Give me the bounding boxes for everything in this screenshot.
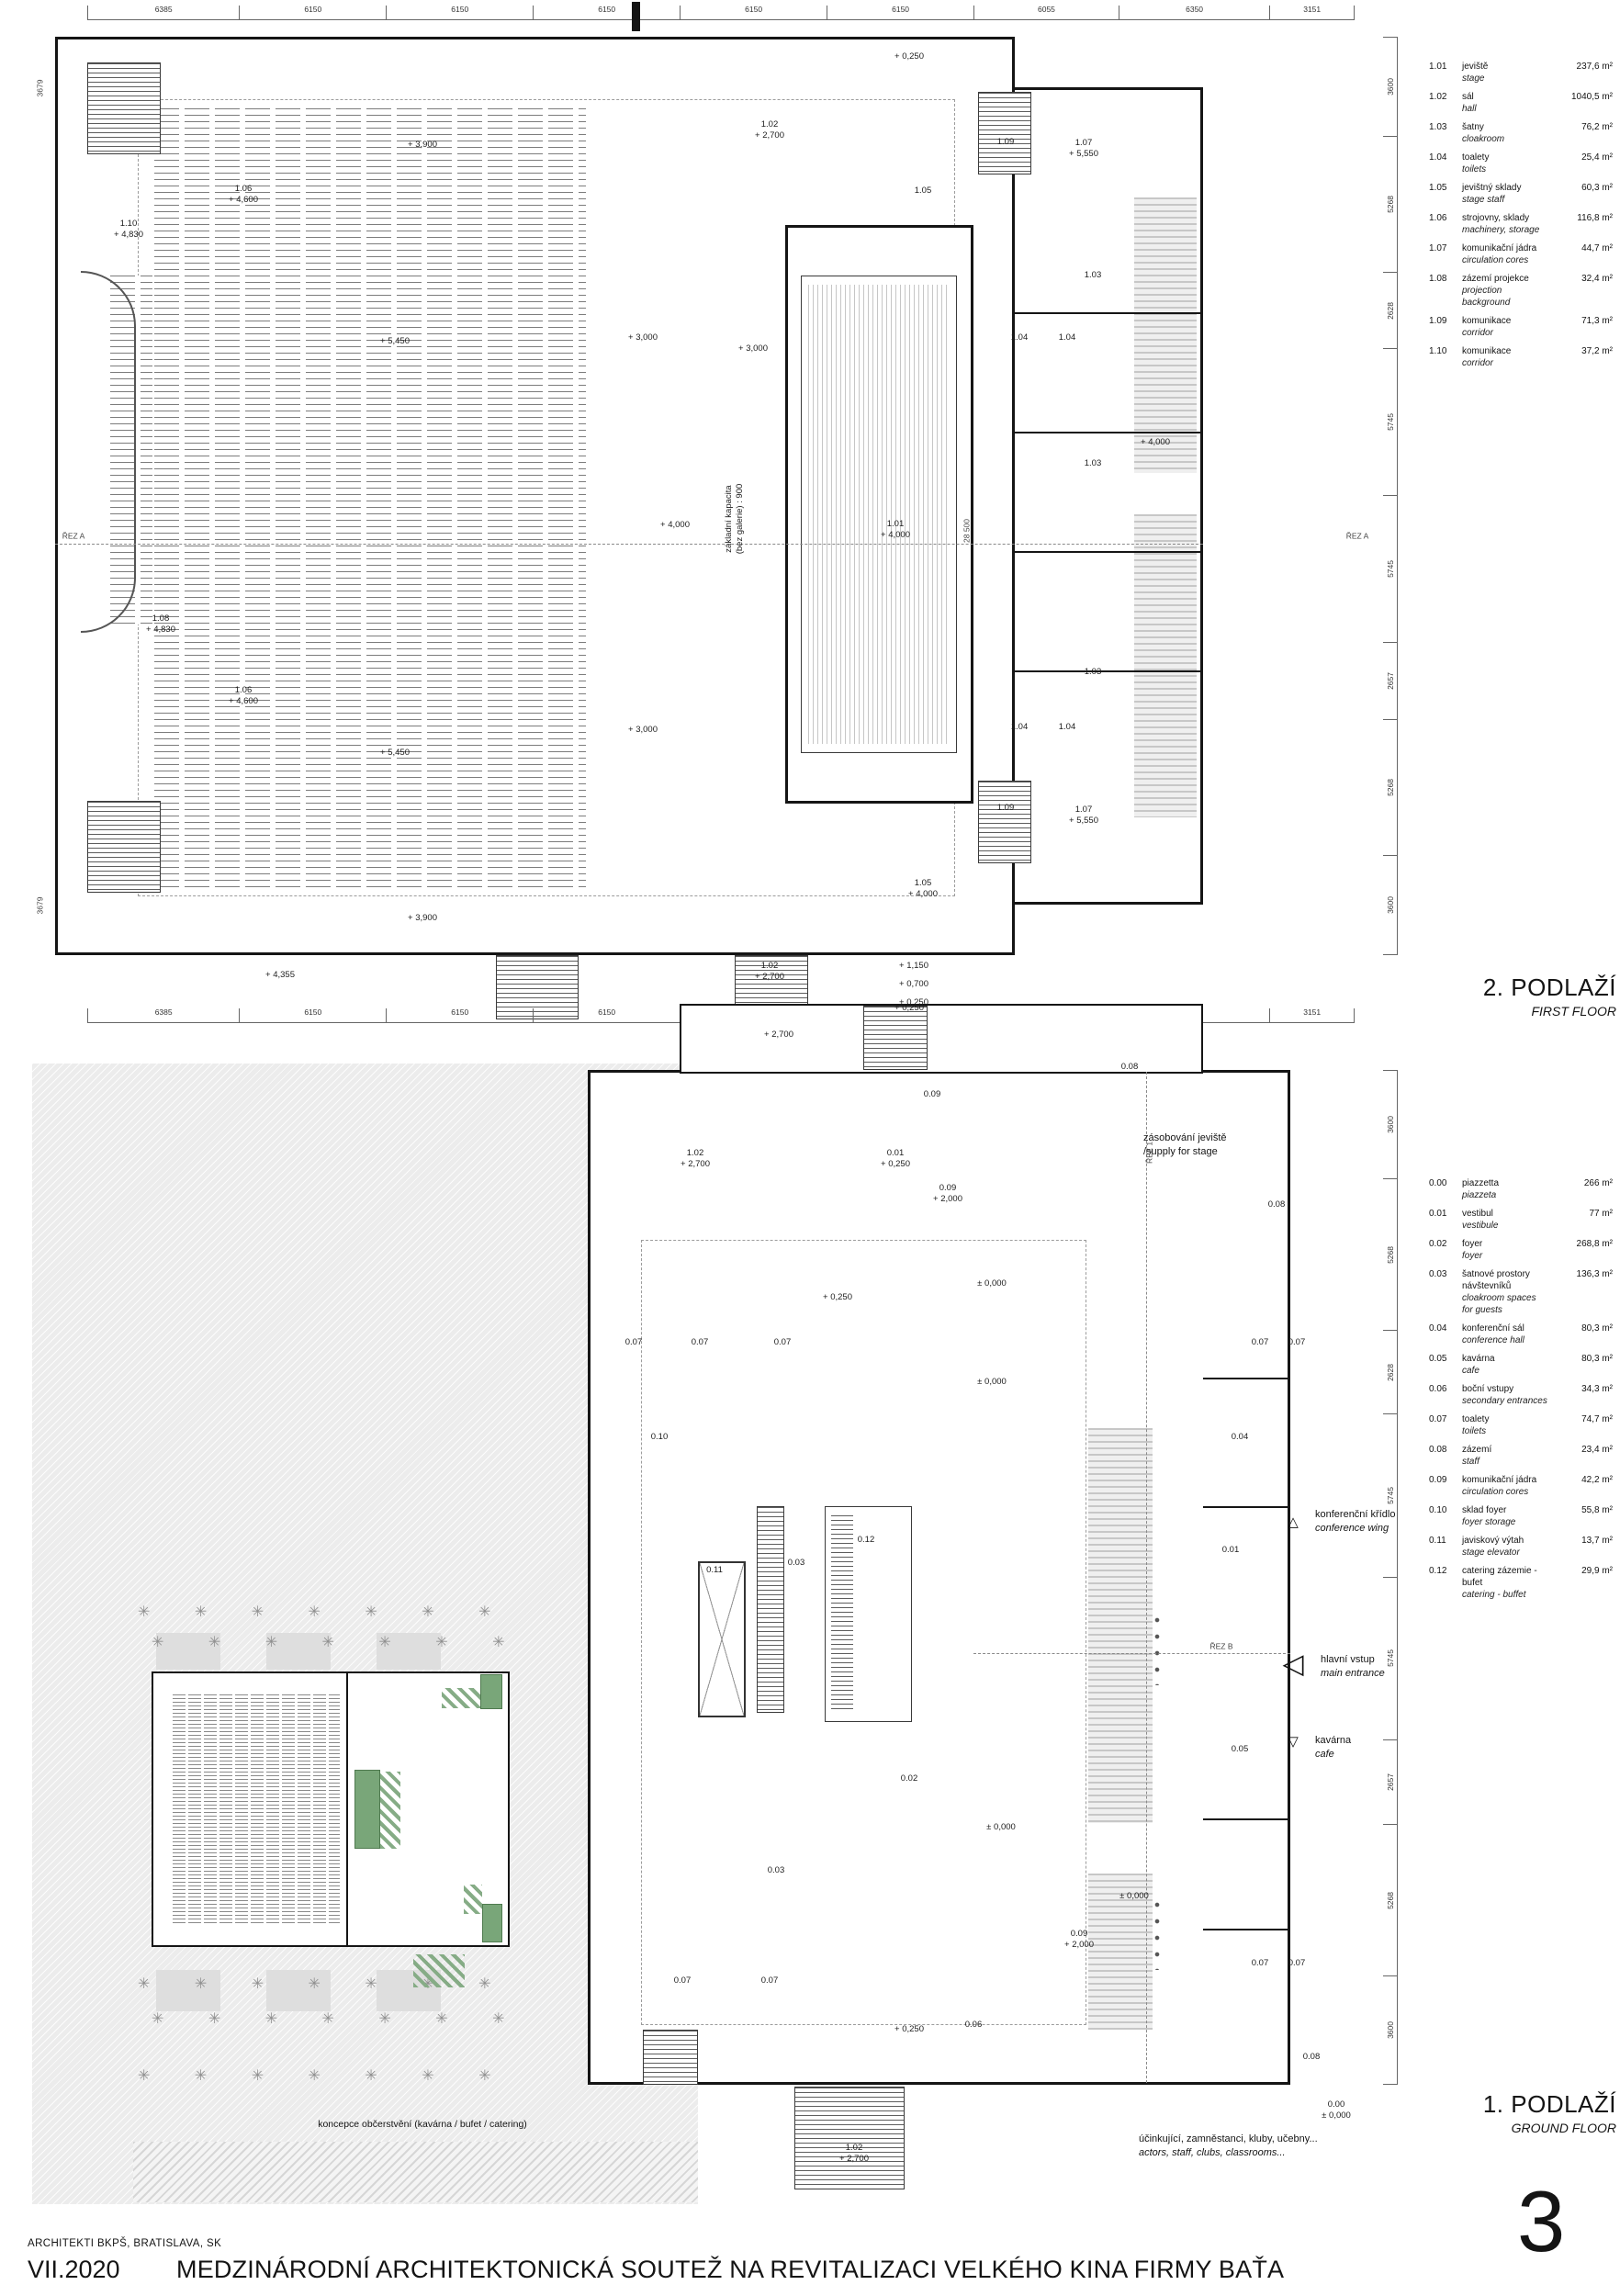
dimension-value: 5268 — [1386, 779, 1395, 796]
plan-tag: 0.00 ± 0,000 — [1322, 2099, 1351, 2122]
legend-room-id: 0.09 — [1429, 1474, 1457, 1498]
plan-tag: + 0,700 — [899, 979, 928, 990]
legend-name-en: piazzeta — [1462, 1189, 1548, 1201]
legend-name-cz: konferenční sál — [1462, 1322, 1548, 1334]
stair — [978, 92, 1031, 174]
dimension-value: 2657 — [1386, 1773, 1395, 1791]
legend-room-names: toaletytoilets — [1462, 1413, 1548, 1437]
dimension-value: 6385 — [155, 1007, 173, 1022]
floor-title-cz: 1. PODLAŽÍ — [1446, 2090, 1616, 2119]
balcony-arc — [81, 271, 136, 633]
tree-icon-row: ✳ ✳ ✳ ✳ ✳ ✳ ✳ — [152, 2009, 525, 2028]
dimension-segment: 6385 — [87, 6, 239, 19]
legend-room-names: zázemí projekceprojection background — [1462, 273, 1548, 309]
legend-name-en: corridor — [1462, 327, 1548, 339]
triangle-left-icon: ◁ — [1282, 1649, 1303, 1681]
dimension-value: 3600 — [1386, 1116, 1395, 1133]
legend-room-names: šatnycloakroom — [1462, 121, 1548, 145]
main-entrance-annotation-en: main entrance — [1321, 1667, 1385, 1681]
ground-floor-title: 1. PODLAŽÍ GROUND FLOOR — [1446, 2090, 1616, 2135]
legend-name-cz: šatny — [1462, 121, 1548, 133]
supply-annotation-en: /supply for stage — [1143, 1145, 1227, 1159]
legend-name-en: stage elevator — [1462, 1547, 1548, 1559]
dimension-segment: 6150 — [533, 1008, 680, 1022]
legend-name-en: circulation cores — [1462, 254, 1548, 266]
triangle-up-icon: △ — [1288, 1514, 1299, 1530]
legend-row: 0.12catering zázemie - bufetcatering - b… — [1429, 1565, 1613, 1601]
cafe-annotation: kavárna cafe — [1315, 1734, 1351, 1761]
legend-name-en: stage — [1462, 73, 1548, 84]
footer-title: MEDZINÁRODNÍ ARCHITEKTONICKÁ SOUTEŽ NA R… — [176, 2256, 1284, 2284]
dimension-value: 6150 — [304, 5, 321, 19]
legend-room-area: 34,3 m² — [1554, 1383, 1613, 1407]
cafe-annotation-en: cafe — [1315, 1748, 1351, 1761]
dimension-value: 2628 — [1386, 302, 1395, 320]
dimension-segment: 5745 — [1383, 1577, 1397, 1739]
legend-room-id: 0.02 — [1429, 1238, 1457, 1262]
legend-room-id: 1.01 — [1429, 61, 1457, 84]
legend-name-cz: komunikace — [1462, 315, 1548, 327]
legend-room-area: 60,3 m² — [1554, 182, 1613, 206]
supply-annotation: zásobování jeviště /supply for stage — [1143, 1131, 1227, 1159]
legend-row: 1.01jevištěstage237,6 m² — [1429, 61, 1613, 84]
legend-room-names: boční vstupysecondary entrances — [1462, 1383, 1548, 1407]
legend-room-area: 42,2 m² — [1554, 1474, 1613, 1498]
legend-room-names: konferenční sálconference hall — [1462, 1322, 1548, 1346]
catering-hatch-zone — [413, 1954, 465, 1987]
wing-partition — [1203, 1929, 1290, 1930]
supply-annotation-cz: zásobování jeviště — [1143, 1131, 1227, 1145]
legend-name-en: cafe — [1462, 1365, 1548, 1377]
legend-room-id: 1.02 — [1429, 91, 1457, 115]
dimension-segment: 2628 — [1383, 1330, 1397, 1414]
legend-name-cz: komunikační jádra — [1462, 1474, 1548, 1486]
catering-hatch-zone — [464, 1885, 482, 1914]
dimension-value: 3151 — [1303, 1007, 1321, 1022]
conference-annotation: konferenční křídlo conference wing — [1315, 1508, 1395, 1536]
wing-partition — [1015, 670, 1203, 672]
page-number: 3 — [1517, 2178, 1565, 2265]
staff-annotation-cz: účinkující, zamněstanci, kluby, učebny..… — [1139, 2133, 1318, 2146]
catering-zone — [482, 1904, 502, 1942]
legend-name-cz: komunikace — [1462, 345, 1548, 357]
dimension-value: 6150 — [451, 1007, 468, 1022]
legend-name-cz: jevištný sklady — [1462, 182, 1548, 194]
catering-hatch-zone — [380, 1772, 400, 1849]
legend-name-cz: piazzetta — [1462, 1177, 1548, 1189]
dimension-value: 5745 — [1386, 1649, 1395, 1667]
inset-caption: koncepce občerstvění (kavárna / bufet / … — [271, 2118, 574, 2131]
legend-room-id: 0.08 — [1429, 1444, 1457, 1468]
dimension-segment: 3600 — [1383, 37, 1397, 136]
dimension-segment: 6055 — [973, 6, 1119, 19]
auditorium-seating — [154, 108, 586, 891]
dimension-segment: 2657 — [1383, 642, 1397, 720]
catering-zone — [480, 1674, 502, 1709]
legend-name-en: toilets — [1462, 163, 1548, 175]
first-floor-legend: 1.01jevištěstage237,6 m²1.02sálhall1040,… — [1429, 61, 1613, 376]
legend-room-id: 1.05 — [1429, 182, 1457, 206]
legend-name-en: secondary entrances — [1462, 1395, 1548, 1407]
legend-row: 1.02sálhall1040,5 m² — [1429, 91, 1613, 115]
plan-tag: 3679 — [36, 897, 46, 915]
legend-name-en: circulation cores — [1462, 1486, 1548, 1498]
legend-name-cz: catering zázemie - bufet — [1462, 1565, 1548, 1589]
stair — [87, 801, 161, 893]
legend-room-names: komunikační jádracirculation cores — [1462, 1474, 1548, 1498]
legend-room-id: 1.04 — [1429, 152, 1457, 175]
plan-tag: 3679 — [36, 80, 46, 97]
wing-partition — [1015, 312, 1203, 314]
floor-title-cz: 2. PODLAŽÍ — [1446, 974, 1616, 1002]
legend-room-names: komunikační jádracirculation cores — [1462, 242, 1548, 266]
legend-name-en: projection background — [1462, 285, 1548, 309]
legend-name-cz: strojovny, sklady — [1462, 212, 1548, 224]
legend-room-names: piazzettapiazzeta — [1462, 1177, 1548, 1201]
legend-row: 0.05kavárnacafe80,3 m² — [1429, 1353, 1613, 1377]
legend-name-cz: komunikační jádra — [1462, 242, 1548, 254]
legend-room-area: 71,3 m² — [1554, 315, 1613, 339]
dimension-value: 2628 — [1386, 1364, 1395, 1381]
stagehouse-block — [680, 1004, 1203, 1074]
legend-room-area: 268,8 m² — [1554, 1238, 1613, 1262]
legend-row: 0.03šatnové prostory návštevníkůcloakroo… — [1429, 1268, 1613, 1316]
legend-room-id: 0.07 — [1429, 1413, 1457, 1437]
plan-tag: 0.07 — [1288, 1958, 1306, 1969]
legend-row: 0.06boční vstupysecondary entrances34,3 … — [1429, 1383, 1613, 1407]
legend-room-area: 29,9 m² — [1554, 1565, 1613, 1601]
dimension-value: 5268 — [1386, 1246, 1395, 1264]
legend-row: 1.05jevištný skladystage staff60,3 m² — [1429, 182, 1613, 206]
section-line-b — [973, 1653, 1290, 1654]
legend-name-en: machinery, storage — [1462, 224, 1548, 236]
dimension-segment: 5268 — [1383, 1824, 1397, 1975]
legend-row: 1.09komunikacecorridor71,3 m² — [1429, 315, 1613, 339]
legend-room-names: komunikacecorridor — [1462, 345, 1548, 369]
section-line-a — [55, 544, 1203, 545]
wing-partition — [1015, 551, 1203, 553]
dimension-segment: 3151 — [1269, 1008, 1355, 1022]
tree-icon-row: ✳ ✳ ✳ ✳ ✳ ✳ ✳ — [138, 2066, 512, 2085]
legend-room-area: 13,7 m² — [1554, 1535, 1613, 1559]
tree-icon-row: ✳ ✳ ✳ ✳ ✳ ✳ ✳ — [138, 1603, 512, 1621]
legend-name-en: cloakroom spaces for guests — [1462, 1292, 1548, 1316]
legend-room-area: 44,7 m² — [1554, 242, 1613, 266]
dimension-value: 5268 — [1386, 196, 1395, 213]
legend-name-cz: zázemí — [1462, 1444, 1548, 1456]
legend-room-id: 0.06 — [1429, 1383, 1457, 1407]
legend-row: 0.04konferenční sálconference hall80,3 m… — [1429, 1322, 1613, 1346]
legend-room-names: sklad foyerfoyer storage — [1462, 1504, 1548, 1528]
dimension-value: 3151 — [1303, 5, 1321, 19]
dimension-value: 6385 — [155, 5, 173, 19]
legend-room-area: 23,4 m² — [1554, 1444, 1613, 1468]
stair — [87, 62, 161, 154]
cloakroom-counter — [757, 1506, 784, 1713]
legend-row: 0.10sklad foyerfoyer storage55,8 m² — [1429, 1504, 1613, 1528]
dimension-segment: 6150 — [827, 6, 973, 19]
plan-tag: + 1,150 — [899, 961, 928, 972]
dimension-segment: 2628 — [1383, 272, 1397, 349]
staff-annotation-en: actors, staff, clubs, classrooms... — [1139, 2146, 1318, 2160]
legend-room-area: 77 m² — [1554, 1208, 1613, 1232]
legend-room-area: 32,4 m² — [1554, 273, 1613, 309]
cafe-annotation-cz: kavárna — [1315, 1734, 1351, 1748]
legend-row: 1.04toaletytoilets25,4 m² — [1429, 152, 1613, 175]
wing-partition — [1015, 432, 1203, 433]
dimension-value: 5745 — [1386, 413, 1395, 431]
conference-annotation-en: conference wing — [1315, 1522, 1395, 1536]
legend-name-en: vestibule — [1462, 1220, 1548, 1232]
legend-room-id: 0.03 — [1429, 1268, 1457, 1316]
footer-date: VII.2020 — [28, 2256, 120, 2284]
legend-room-area: 25,4 m² — [1554, 152, 1613, 175]
legend-name-en: staff — [1462, 1456, 1548, 1468]
wing-partition — [1203, 1506, 1290, 1508]
stair — [643, 2030, 698, 2085]
buffet-zone — [354, 1770, 380, 1849]
legend-room-area: 116,8 m² — [1554, 212, 1613, 236]
legend-room-names: zázemístaff — [1462, 1444, 1548, 1468]
legend-room-names: jevištěstage — [1462, 61, 1548, 84]
legend-name-cz: javiskový výtah — [1462, 1535, 1548, 1547]
legend-room-id: 1.03 — [1429, 121, 1457, 145]
legend-room-id: 1.09 — [1429, 315, 1457, 339]
legend-row: 0.08zázemístaff23,4 m² — [1429, 1444, 1613, 1468]
legend-room-names: komunikacecorridor — [1462, 315, 1548, 339]
legend-room-names: jevištný skladystage staff — [1462, 182, 1548, 206]
plan-tag: + 4,355 — [265, 970, 295, 981]
legend-row: 1.06strojovny, skladymachinery, storage1… — [1429, 212, 1613, 236]
legend-name-en: catering - buffet — [1462, 1589, 1548, 1601]
dimension-value: 6150 — [598, 5, 615, 19]
legend-name-cz: sklad foyer — [1462, 1504, 1548, 1516]
legend-room-id: 1.08 — [1429, 273, 1457, 309]
legend-name-en: foyer storage — [1462, 1516, 1548, 1528]
plan-tag: 0.07 — [1288, 1337, 1306, 1348]
dimension-line-right-ground-floor: 36005268262857455745265752683600 — [1383, 1070, 1398, 2085]
stair — [978, 781, 1031, 863]
dimension-segment: 3600 — [1383, 1070, 1397, 1178]
dimension-segment: 6350 — [1119, 6, 1270, 19]
legend-room-area: 37,2 m² — [1554, 345, 1613, 369]
site-paving-hatch — [133, 2142, 698, 2202]
dimension-value: 3600 — [1386, 896, 1395, 914]
legend-room-area: 237,6 m² — [1554, 61, 1613, 84]
dimension-value: 3600 — [1386, 2021, 1395, 2039]
dimension-value: 6150 — [451, 5, 468, 19]
first-floor-title: 2. PODLAŽÍ FIRST FLOOR — [1446, 974, 1616, 1019]
legend-name-cz: sál — [1462, 91, 1548, 103]
dimension-segment: 2657 — [1383, 1739, 1397, 1825]
dimension-value: 2657 — [1386, 672, 1395, 690]
footer-architects: ARCHITEKTI BKPŠ, BRATISLAVA, SK — [28, 2238, 221, 2249]
catering-hatch-zone — [442, 1688, 480, 1708]
legend-row: 0.02foyerfoyer268,8 m² — [1429, 1238, 1613, 1262]
inset-seating — [173, 1694, 340, 1924]
competition-board: 638561506150615061506150605563503151 360… — [0, 0, 1620, 2296]
plan-tag: 0.08 — [1303, 2052, 1321, 2063]
dimension-segment: 5268 — [1383, 1178, 1397, 1329]
dimension-segment: 6150 — [386, 6, 533, 19]
legend-room-area: 80,3 m² — [1554, 1322, 1613, 1346]
staff-annotation: účinkující, zamněstanci, kluby, učebny..… — [1139, 2133, 1318, 2160]
dimension-line-right-first-floor: 36005268262857455745265752683600 — [1383, 37, 1398, 955]
dimension-segment: 3600 — [1383, 855, 1397, 955]
legend-name-cz: kavárna — [1462, 1353, 1548, 1365]
dimension-segment: 5745 — [1383, 348, 1397, 495]
main-entrance-annotation-cz: hlavní vstup — [1321, 1653, 1385, 1667]
dimension-segment: 5745 — [1383, 1413, 1397, 1576]
legend-room-names: javiskový výtahstage elevator — [1462, 1535, 1548, 1559]
section-line-1 — [1146, 1072, 1147, 2083]
legend-name-en: stage staff — [1462, 194, 1548, 206]
dimension-value: 6150 — [745, 5, 762, 19]
legend-room-area: 74,7 m² — [1554, 1413, 1613, 1437]
floor-title-en: FIRST FLOOR — [1446, 1004, 1616, 1019]
ground-floor-legend: 0.00piazzettapiazzeta266 m²0.01vestibulv… — [1429, 1177, 1613, 1607]
legend-room-area: 55,8 m² — [1554, 1504, 1613, 1528]
legend-room-area: 136,3 m² — [1554, 1268, 1613, 1316]
legend-room-names: kavárnacafe — [1462, 1353, 1548, 1377]
dimension-value: 6055 — [1038, 5, 1055, 19]
legend-room-area: 1040,5 m² — [1554, 91, 1613, 115]
legend-room-names: toaletytoilets — [1462, 152, 1548, 175]
legend-name-en: hall — [1462, 103, 1548, 115]
legend-room-names: strojovny, skladymachinery, storage — [1462, 212, 1548, 236]
legend-name-en: corridor — [1462, 357, 1548, 369]
dimension-value: 5745 — [1386, 1487, 1395, 1504]
exterior-stair — [794, 2087, 905, 2189]
legend-name-en: toilets — [1462, 1425, 1548, 1437]
conference-annotation-cz: konferenční křídlo — [1315, 1508, 1395, 1522]
legend-room-id: 1.06 — [1429, 212, 1457, 236]
wall-poche — [632, 2, 640, 31]
hatch-band — [1134, 514, 1197, 817]
dimension-value: 3600 — [1386, 78, 1395, 96]
legend-room-area: 76,2 m² — [1554, 121, 1613, 145]
legend-room-names: vestibulvestibule — [1462, 1208, 1548, 1232]
dimension-segment: 6150 — [386, 1008, 533, 1022]
legend-row: 1.08zázemí projekceprojection background… — [1429, 273, 1613, 309]
legend-room-id: 1.10 — [1429, 345, 1457, 369]
legend-row: 0.07toaletytoilets74,7 m² — [1429, 1413, 1613, 1437]
hatch-band — [1088, 1874, 1153, 2030]
legend-row: 1.10komunikacecorridor37,2 m² — [1429, 345, 1613, 369]
legend-room-id: 0.10 — [1429, 1504, 1457, 1528]
dimension-value: 6150 — [304, 1007, 321, 1022]
legend-room-id: 0.00 — [1429, 1177, 1457, 1201]
legend-name-cz: toalety — [1462, 152, 1548, 163]
legend-name-cz: vestibul — [1462, 1208, 1548, 1220]
floor-title-en: GROUND FLOOR — [1446, 2121, 1616, 2135]
dimension-value: 5745 — [1386, 560, 1395, 578]
dimension-value: 6150 — [598, 1007, 615, 1022]
legend-row: 1.07komunikační jádracirculation cores44… — [1429, 242, 1613, 266]
legend-room-area: 266 m² — [1554, 1177, 1613, 1201]
legend-name-cz: zázemí projekce — [1462, 273, 1548, 285]
legend-name-cz: foyer — [1462, 1238, 1548, 1250]
legend-room-id: 0.05 — [1429, 1353, 1457, 1377]
dimension-value: 6350 — [1186, 5, 1203, 19]
legend-name-en: foyer — [1462, 1250, 1548, 1262]
dimension-value: 5268 — [1386, 1892, 1395, 1909]
dimension-segment: 6150 — [239, 6, 386, 19]
legend-row: 0.09komunikační jádracirculation cores42… — [1429, 1474, 1613, 1498]
legend-room-area: 80,3 m² — [1554, 1353, 1613, 1377]
legend-room-id: 1.07 — [1429, 242, 1457, 266]
dimension-segment: 5268 — [1383, 136, 1397, 272]
legend-room-names: šatnové prostory návštevníkůcloakroom sp… — [1462, 1268, 1548, 1316]
legend-name-cz: šatnové prostory návštevníků — [1462, 1268, 1548, 1292]
main-entrance-annotation: hlavní vstup main entrance — [1321, 1653, 1385, 1681]
legend-room-id: 0.11 — [1429, 1535, 1457, 1559]
stage-elevator-shaft — [698, 1561, 746, 1717]
dimension-line-top-first-floor: 638561506150615061506150605563503151 — [87, 6, 1355, 20]
legend-row: 1.03šatnycloakroom76,2 m² — [1429, 121, 1613, 145]
legend-room-names: foyerfoyer — [1462, 1238, 1548, 1262]
dimension-segment: 6385 — [87, 1008, 239, 1022]
legend-room-names: sálhall — [1462, 91, 1548, 115]
legend-room-id: 0.12 — [1429, 1565, 1457, 1601]
plan-tag: ŘEZ A — [1346, 532, 1369, 542]
dimension-segment: 5745 — [1383, 495, 1397, 642]
dimension-segment: 6150 — [533, 6, 680, 19]
legend-row: 0.11javiskový výtahstage elevator13,7 m² — [1429, 1535, 1613, 1559]
stage-floor-lines — [808, 285, 950, 744]
buffet-shelving — [831, 1515, 853, 1713]
legend-room-id: 0.04 — [1429, 1322, 1457, 1346]
legend-name-en: conference hall — [1462, 1334, 1548, 1346]
dimension-segment: 6150 — [680, 6, 827, 19]
legend-name-cz: boční vstupy — [1462, 1383, 1548, 1395]
legend-room-names: catering zázemie - bufetcatering - buffe… — [1462, 1565, 1548, 1601]
hatch-band — [1088, 1428, 1153, 1823]
dimension-segment: 5268 — [1383, 719, 1397, 855]
stair — [863, 1006, 928, 1070]
wing-partition — [1203, 1818, 1290, 1820]
dimension-segment: 3151 — [1269, 6, 1355, 19]
wing-partition — [1203, 1378, 1290, 1379]
dimension-value: 6150 — [892, 5, 909, 19]
tree-icon-row: ✳ ✳ ✳ ✳ ✳ ✳ ✳ — [152, 1633, 525, 1651]
dimension-segment: 3600 — [1383, 1975, 1397, 2085]
legend-row: 0.00piazzettapiazzeta266 m² — [1429, 1177, 1613, 1201]
dimension-segment: 6150 — [239, 1008, 386, 1022]
legend-name-cz: toalety — [1462, 1413, 1548, 1425]
legend-name-en: cloakroom — [1462, 133, 1548, 145]
inset-partition — [346, 1673, 348, 1945]
legend-row: 0.01vestibulvestibule77 m² — [1429, 1208, 1613, 1232]
legend-room-id: 0.01 — [1429, 1208, 1457, 1232]
triangle-down-icon: ▽ — [1288, 1733, 1299, 1750]
legend-name-cz: jeviště — [1462, 61, 1548, 73]
